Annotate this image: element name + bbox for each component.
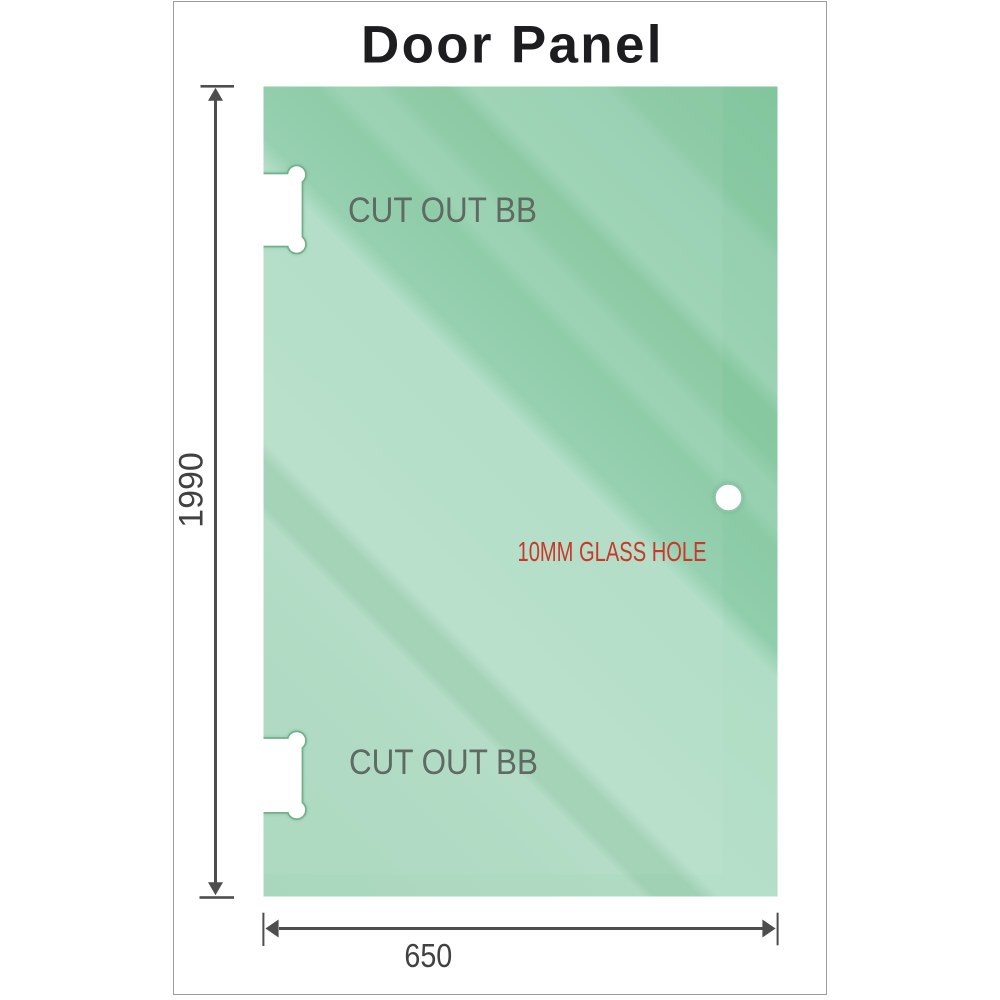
svg-text:1990: 1990: [172, 452, 210, 528]
svg-text:10MM GLASS HOLE: 10MM GLASS HOLE: [518, 537, 707, 568]
svg-text:650: 650: [404, 937, 452, 974]
svg-text:CUT OUT BB: CUT OUT BB: [348, 191, 537, 230]
svg-text:CUT OUT BB: CUT OUT BB: [349, 743, 538, 782]
svg-text:Door Panel: Door Panel: [361, 16, 664, 75]
